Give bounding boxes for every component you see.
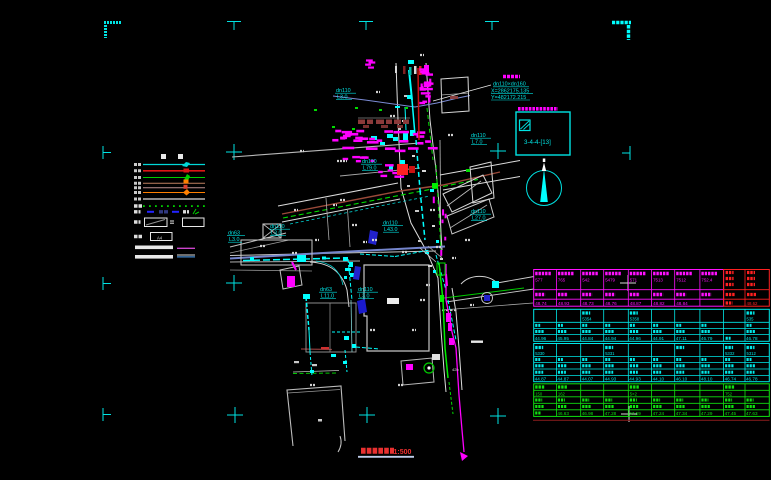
svg-text:44.07: 44.07 xyxy=(582,377,594,382)
svg-text:44.87: 44.87 xyxy=(557,377,569,382)
svg-text:44.84: 44.84 xyxy=(582,336,594,341)
svg-text:46.10: 46.10 xyxy=(676,377,688,382)
svg-text:46.63: 46.63 xyxy=(557,411,569,416)
svg-text:577: 577 xyxy=(535,278,543,283)
svg-text:48.62: 48.62 xyxy=(747,301,759,306)
svg-text:765: 765 xyxy=(558,278,566,283)
svg-text:5332: 5332 xyxy=(725,351,735,356)
svg-text:47.45: 47.45 xyxy=(725,411,737,416)
svg-text:44.94: 44.94 xyxy=(605,336,617,341)
svg-text:5479: 5479 xyxy=(605,278,615,283)
svg-text:45.95: 45.95 xyxy=(557,336,569,341)
svg-text:48.76: 48.76 xyxy=(605,301,617,306)
svg-text:1:500: 1:500 xyxy=(394,449,412,456)
svg-text:162: 162 xyxy=(558,392,566,397)
svg-text:46.74: 46.74 xyxy=(725,377,737,382)
svg-text:47.59: 47.59 xyxy=(629,411,641,416)
svg-text:44.96: 44.96 xyxy=(629,336,641,341)
svg-text:44.91: 44.91 xyxy=(653,336,665,341)
svg-text:46.78: 46.78 xyxy=(746,377,758,382)
svg-text:5354: 5354 xyxy=(582,317,592,322)
svg-text:48.84: 48.84 xyxy=(676,301,688,306)
svg-text:46.78: 46.78 xyxy=(746,336,758,341)
svg-text:44.93: 44.93 xyxy=(629,377,641,382)
svg-text:7513: 7513 xyxy=(653,278,663,283)
svg-text:46.98: 46.98 xyxy=(582,411,594,416)
svg-text:5331: 5331 xyxy=(605,351,615,356)
svg-text:44.93: 44.93 xyxy=(605,377,617,382)
svg-text:44.87: 44.87 xyxy=(535,377,547,382)
svg-text:5358: 5358 xyxy=(630,317,640,322)
svg-text:48.74: 48.74 xyxy=(535,301,547,306)
svg-text:47.34: 47.34 xyxy=(676,411,688,416)
svg-text:48.10: 48.10 xyxy=(701,377,713,382)
svg-text:752: 752 xyxy=(725,392,733,397)
svg-text:47.63: 47.63 xyxy=(746,411,758,416)
svg-text:5312: 5312 xyxy=(747,351,757,356)
svg-text:44.10: 44.10 xyxy=(653,377,665,382)
svg-text:47.11: 47.11 xyxy=(676,336,688,341)
svg-text:42b: 42b xyxy=(452,367,459,372)
svg-text:752.4: 752.4 xyxy=(701,278,713,283)
svg-text:47.29: 47.29 xyxy=(701,411,713,416)
svg-text:3-4-4-[13]: 3-4-4-[13] xyxy=(524,139,551,146)
svg-text:48.93: 48.93 xyxy=(558,301,570,306)
svg-text:5×2: 5×2 xyxy=(630,392,638,397)
svg-text:48.73: 48.73 xyxy=(582,301,594,306)
svg-text:150: 150 xyxy=(535,392,543,397)
svg-text:46.79: 46.79 xyxy=(701,336,713,341)
svg-text:7512: 7512 xyxy=(676,278,686,283)
svg-text:48.87: 48.87 xyxy=(630,301,642,306)
svg-text:47.28: 47.28 xyxy=(605,411,617,416)
svg-text:571: 571 xyxy=(630,278,638,283)
svg-text:48.82: 48.82 xyxy=(653,301,665,306)
svg-text:47.24: 47.24 xyxy=(653,411,665,416)
svg-text:44.96: 44.96 xyxy=(535,336,547,341)
svg-text:535: 535 xyxy=(747,317,755,322)
svg-text:5330: 5330 xyxy=(535,351,545,356)
svg-text:542: 542 xyxy=(582,278,590,283)
svg-text:A4: A4 xyxy=(157,235,163,240)
